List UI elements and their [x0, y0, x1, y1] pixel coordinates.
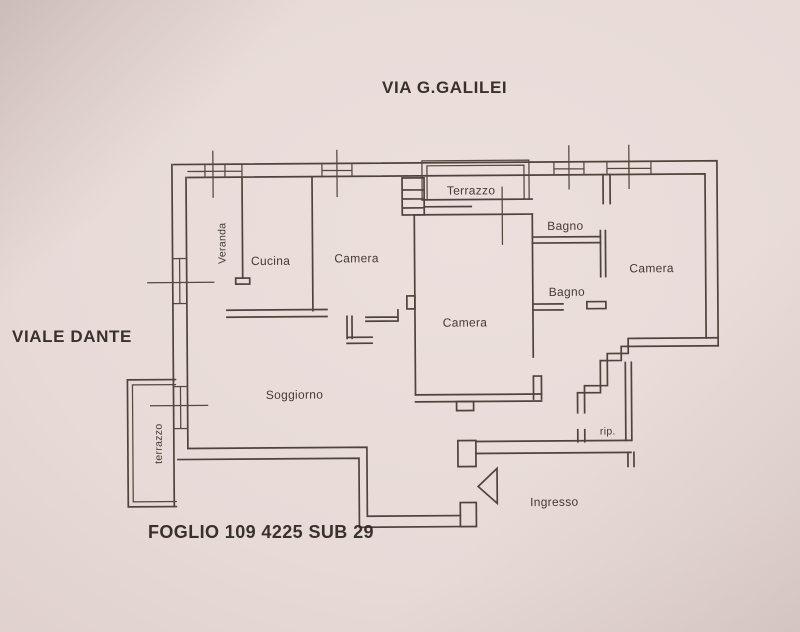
room-label-camera-left: Camera	[334, 251, 379, 265]
room-label-ripostiglio: rip.	[600, 425, 616, 437]
room-label-bagno-upper: Bagno	[547, 219, 583, 233]
room-label-camera-right: Camera	[629, 261, 674, 275]
terrace-left-walls	[127, 380, 176, 507]
room-labels: Veranda Cucina Camera Terrazzo Camera Ba…	[151, 182, 676, 512]
room-label-terrazzo-left: terrazzo	[153, 423, 165, 463]
room-label-bagno-lower: Bagno	[549, 285, 585, 299]
room-label-cucina: Cucina	[251, 254, 290, 268]
room-label-camera-center: Camera	[443, 315, 488, 329]
floor-plan-photo: Veranda Cucina Camera Terrazzo Camera Ba…	[0, 0, 800, 632]
room-label-veranda: Veranda	[216, 223, 228, 264]
cadastral-caption: FOGLIO 109 4225 SUB 29	[148, 522, 374, 542]
room-label-ingresso: Ingresso	[530, 495, 579, 509]
camera-center-walls	[406, 214, 541, 411]
street-label-left: VIALE DANTE	[12, 327, 132, 346]
street-label-top: VIA G.GALILEI	[382, 78, 507, 97]
floor-plan-drawing: Veranda Cucina Camera Terrazzo Camera Ba…	[0, 0, 800, 632]
room-label-terrazzo-top: Terrazzo	[447, 183, 496, 197]
room-label-soggiorno: Soggiorno	[266, 388, 324, 402]
entrance-door-arrow-icon	[478, 468, 497, 503]
exterior-walls	[172, 161, 720, 529]
